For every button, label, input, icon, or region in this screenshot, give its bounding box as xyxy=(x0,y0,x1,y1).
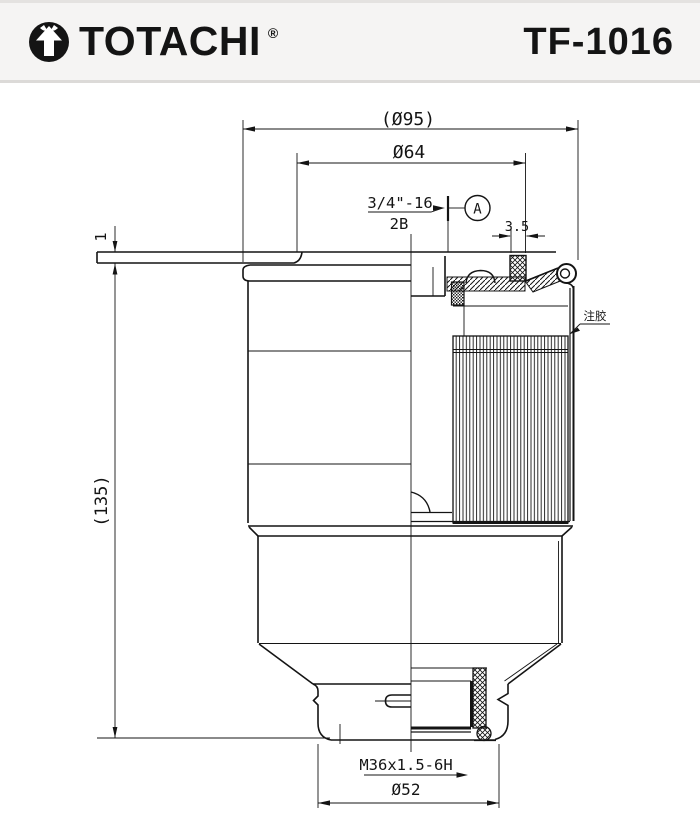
thread-spec-label: 3/4"-16 xyxy=(367,194,432,212)
dim-bottom-diameter-label: Ø52 xyxy=(392,780,421,799)
bottom-seal xyxy=(477,727,491,741)
brand-lockup: TOTACHI ® xyxy=(26,19,278,65)
part-number: TF-1016 xyxy=(523,23,674,61)
crimp-knurl xyxy=(452,282,465,305)
dim-height-label: (135) xyxy=(92,475,112,526)
registered-trademark-icon: ® xyxy=(268,25,278,41)
dim-lid-diameter-label: Ø64 xyxy=(393,142,426,163)
dim-plate-thickness-label: 1 xyxy=(92,232,110,241)
thread-section xyxy=(473,668,486,728)
datum-a-label: A xyxy=(473,202,482,218)
filter-media xyxy=(453,336,568,523)
glue-note-label: 注胶 xyxy=(584,309,607,323)
totachi-logo-icon xyxy=(26,19,72,65)
dim-overall-diameter-label: (Ø95) xyxy=(381,109,435,130)
header-bar: TOTACHI ® TF-1016 xyxy=(0,0,700,83)
drawing-sheet: (Ø95) Ø64 3/4"-16 2B A 3.5 1 (135) 注胶 M3… xyxy=(0,83,700,840)
seam-gasket xyxy=(510,256,526,282)
filter-drawing: (Ø95) Ø64 3/4"-16 2B A 3.5 1 (135) 注胶 M3… xyxy=(0,83,700,840)
brand-name: TOTACHI xyxy=(79,21,261,62)
thread-class-label: 2B xyxy=(390,215,409,233)
dim-seam-width-label: 3.5 xyxy=(505,219,529,235)
thread-bottom-label: M36x1.5-6H xyxy=(359,756,452,774)
